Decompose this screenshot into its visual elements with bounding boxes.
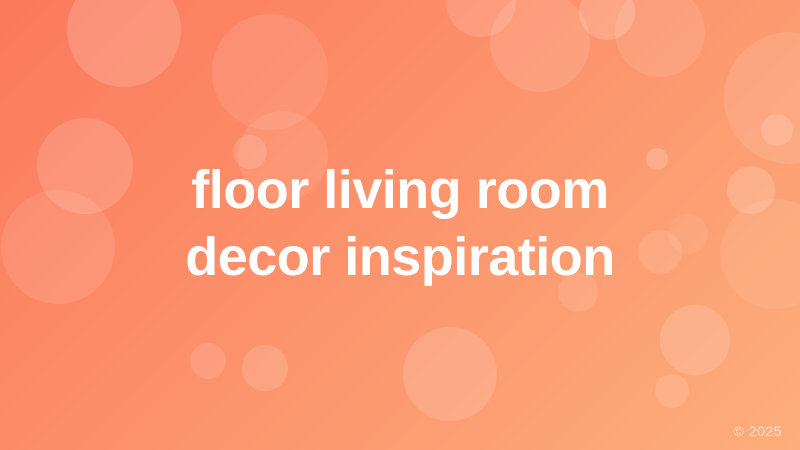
bokeh-bubble bbox=[655, 374, 689, 408]
bokeh-bubble bbox=[660, 305, 730, 375]
bokeh-bubble bbox=[190, 343, 226, 379]
page-title: floor living room decor inspiration bbox=[0, 157, 800, 291]
bokeh-bubble bbox=[446, 0, 516, 37]
bokeh-bubble bbox=[403, 327, 497, 421]
bokeh-bubble bbox=[212, 14, 328, 130]
title-line-1: floor living room bbox=[0, 157, 800, 224]
bokeh-bubble bbox=[67, 0, 181, 87]
bokeh-bubble bbox=[490, 0, 590, 92]
banner-background: floor living room decor inspiration © 20… bbox=[0, 0, 800, 450]
bokeh-bubble bbox=[579, 0, 635, 40]
title-line-2: decor inspiration bbox=[0, 224, 800, 291]
bokeh-bubble bbox=[242, 345, 288, 391]
copyright-notice: © 2025 bbox=[734, 423, 782, 439]
bokeh-bubble bbox=[615, 0, 705, 77]
bokeh-bubble bbox=[724, 32, 800, 164]
bokeh-bubble bbox=[761, 114, 793, 146]
